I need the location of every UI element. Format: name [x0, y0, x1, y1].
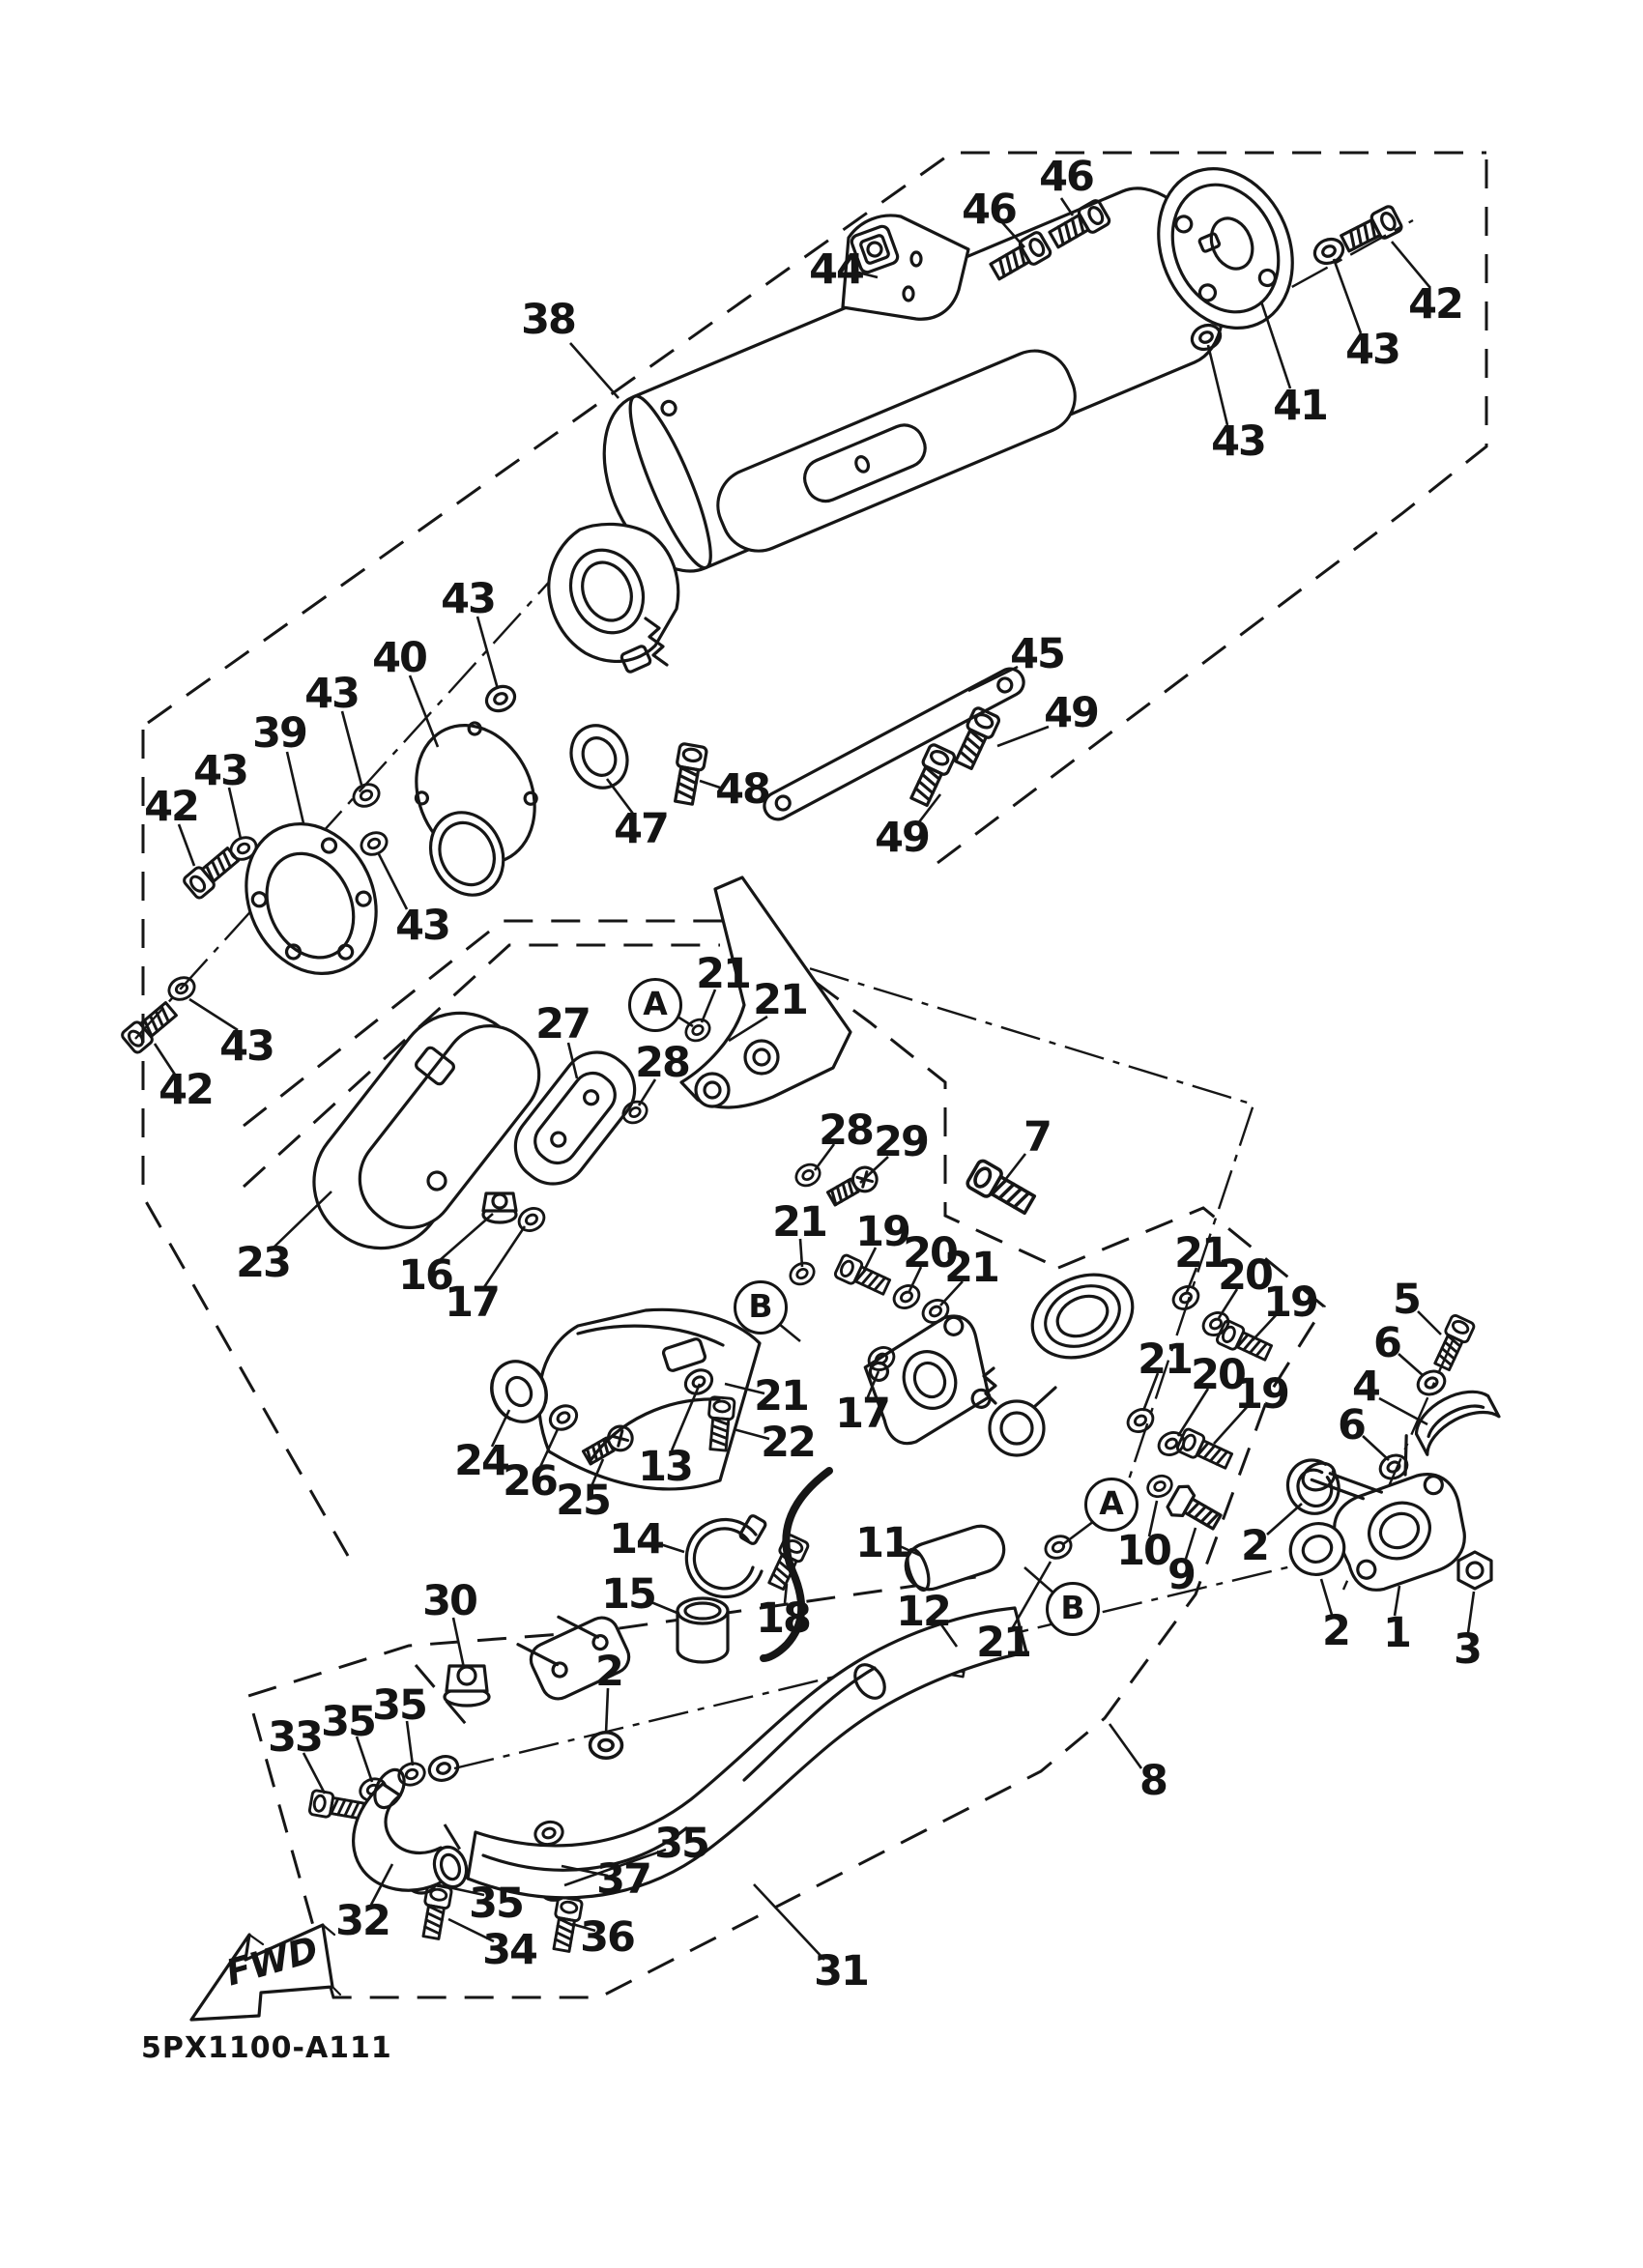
part-callout-46[interactable]: 46 [962, 186, 1016, 234]
part-callout-21[interactable]: 21 [696, 950, 750, 998]
leader-line [287, 752, 303, 823]
part-callout-43[interactable]: 43 [219, 1022, 274, 1071]
valve-joint [984, 1368, 1055, 1455]
part-callout-6[interactable]: 6 [1338, 1401, 1365, 1450]
part-callout-47[interactable]: 47 [614, 805, 668, 853]
part-callout-45[interactable]: 45 [1010, 630, 1064, 678]
part-callout-49[interactable]: 49 [875, 814, 929, 862]
part-callout-33[interactable]: 33 [268, 1713, 322, 1762]
cone-40 [384, 705, 565, 906]
part-callout-35[interactable]: 35 [654, 1820, 708, 1868]
flex-coupling [1019, 1259, 1146, 1373]
part-callout-49[interactable]: 49 [1044, 689, 1098, 737]
part-callout-1[interactable]: 1 [1383, 1609, 1410, 1657]
manifold-cluster [1279, 1381, 1499, 1607]
leader-line [1267, 1504, 1302, 1535]
sleeve-15 [677, 1598, 728, 1662]
ref-marker-A: A [1084, 1478, 1139, 1532]
part-callout-40[interactable]: 40 [372, 634, 426, 682]
part-callout-11[interactable]: 11 [855, 1519, 909, 1567]
part-callout-43[interactable]: 43 [441, 575, 495, 623]
parts-diagram-page: 3846464442434143454949484743404339434243… [0, 0, 1643, 2268]
part-callout-9[interactable]: 9 [1167, 1551, 1195, 1599]
clamp-14 [686, 1514, 766, 1596]
part-callout-28[interactable]: 28 [635, 1039, 689, 1087]
part-callout-26[interactable]: 26 [503, 1457, 557, 1506]
part-callout-35[interactable]: 35 [372, 1681, 426, 1730]
part-callout-43[interactable]: 43 [1211, 417, 1265, 466]
part-callout-46[interactable]: 46 [1039, 153, 1093, 201]
damper-47 [562, 716, 638, 796]
pipe-11 [900, 1520, 1010, 1595]
leader-line [1110, 1724, 1141, 1768]
part-callout-42[interactable]: 42 [159, 1066, 213, 1114]
part-callout-21[interactable]: 21 [1138, 1335, 1192, 1384]
leader-line [570, 343, 619, 398]
leader-line [1334, 259, 1361, 333]
part-callout-44[interactable]: 44 [809, 245, 863, 294]
part-callout-31[interactable]: 31 [814, 1947, 868, 1995]
nut-30 [445, 1666, 489, 1706]
part-callout-43[interactable]: 43 [304, 670, 359, 718]
part-callout-27[interactable]: 27 [535, 1000, 590, 1048]
part-callout-6[interactable]: 6 [1373, 1319, 1400, 1367]
stay-45 [681, 664, 1028, 1107]
muffler-assembly [222, 148, 1316, 1107]
leader-line [1398, 1354, 1424, 1376]
ref-marker-A: A [628, 978, 682, 1032]
ref-marker-B: B [734, 1280, 788, 1335]
part-callout-37[interactable]: 37 [596, 1855, 650, 1904]
part-callout-2[interactable]: 2 [595, 1648, 622, 1696]
part-callout-3[interactable]: 3 [1454, 1625, 1481, 1674]
part-callout-21[interactable]: 21 [754, 1372, 808, 1421]
part-callout-28[interactable]: 28 [819, 1106, 873, 1155]
leader-line [997, 727, 1049, 746]
leader-line [410, 675, 438, 747]
leader-line [779, 1324, 800, 1341]
leader-line [1013, 1562, 1051, 1627]
part-callout-39[interactable]: 39 [252, 709, 306, 758]
muffler-front-cone [549, 524, 678, 673]
part-callout-36[interactable]: 36 [580, 1913, 634, 1962]
gasket-2 [1279, 1451, 1347, 1522]
part-callout-41[interactable]: 41 [1273, 382, 1327, 430]
ref-marker-B: B [1046, 1582, 1100, 1636]
part-callout-7[interactable]: 7 [1023, 1113, 1051, 1162]
leader-line [1005, 1154, 1025, 1180]
part-callout-5[interactable]: 5 [1393, 1276, 1420, 1324]
part-callout-19[interactable]: 19 [855, 1208, 909, 1256]
part-callout-21[interactable]: 21 [753, 976, 807, 1024]
part-callout-2[interactable]: 2 [1241, 1522, 1268, 1570]
part-callout-43[interactable]: 43 [1345, 326, 1399, 374]
leader-line [1261, 301, 1290, 388]
part-callout-43[interactable]: 43 [395, 902, 449, 950]
leader-line [677, 1017, 693, 1026]
part-callout-34[interactable]: 34 [482, 1926, 536, 1974]
part-callout-43[interactable]: 43 [193, 747, 247, 795]
part-callout-42[interactable]: 42 [1408, 280, 1462, 329]
leader-line [477, 617, 498, 689]
part-callout-25[interactable]: 25 [556, 1477, 610, 1525]
leader-line [1363, 1436, 1389, 1460]
part-callout-24[interactable]: 24 [454, 1437, 508, 1485]
part-callout-17[interactable]: 17 [445, 1278, 499, 1327]
part-callout-14[interactable]: 14 [609, 1515, 663, 1564]
part-callout-13[interactable]: 13 [638, 1443, 692, 1491]
part-callout-21[interactable]: 21 [976, 1619, 1030, 1667]
leader-line [1024, 1567, 1055, 1594]
part-callout-12[interactable]: 12 [896, 1588, 950, 1636]
part-callout-30[interactable]: 30 [422, 1577, 476, 1625]
part-callout-23[interactable]: 23 [236, 1239, 290, 1287]
part-callout-10[interactable]: 10 [1116, 1527, 1170, 1575]
part-callout-32[interactable]: 32 [335, 1897, 389, 1945]
part-callout-29[interactable]: 29 [874, 1118, 928, 1166]
part-callout-42[interactable]: 42 [144, 783, 198, 831]
nut-3 [1458, 1552, 1491, 1589]
leader-line [1418, 1311, 1441, 1335]
part-callout-19[interactable]: 19 [1263, 1278, 1317, 1327]
part-callout-8[interactable]: 8 [1139, 1757, 1167, 1805]
leader-line [1379, 1398, 1427, 1424]
part-callout-38[interactable]: 38 [521, 296, 575, 344]
flange-39 [222, 802, 400, 994]
leader-line [342, 711, 361, 785]
part-callout-35[interactable]: 35 [321, 1698, 375, 1746]
part-callout-15[interactable]: 15 [601, 1570, 655, 1619]
part-callout-21[interactable]: 21 [772, 1198, 826, 1247]
part-callout-18[interactable]: 18 [756, 1594, 810, 1643]
part-callout-48[interactable]: 48 [715, 765, 769, 814]
part-callout-22[interactable]: 22 [761, 1419, 815, 1467]
diagram-code: 5PX1100-A111 [141, 2031, 392, 2065]
part-callout-21[interactable]: 21 [944, 1244, 998, 1292]
part-callout-19[interactable]: 19 [1234, 1370, 1288, 1419]
part-callout-17[interactable]: 17 [835, 1390, 889, 1438]
part-callout-35[interactable]: 35 [469, 1880, 523, 1928]
heat-shield-23 [288, 988, 558, 1274]
leader-line [1063, 1521, 1094, 1544]
leader-line [1208, 345, 1227, 425]
part-callout-2[interactable]: 2 [1322, 1607, 1349, 1655]
